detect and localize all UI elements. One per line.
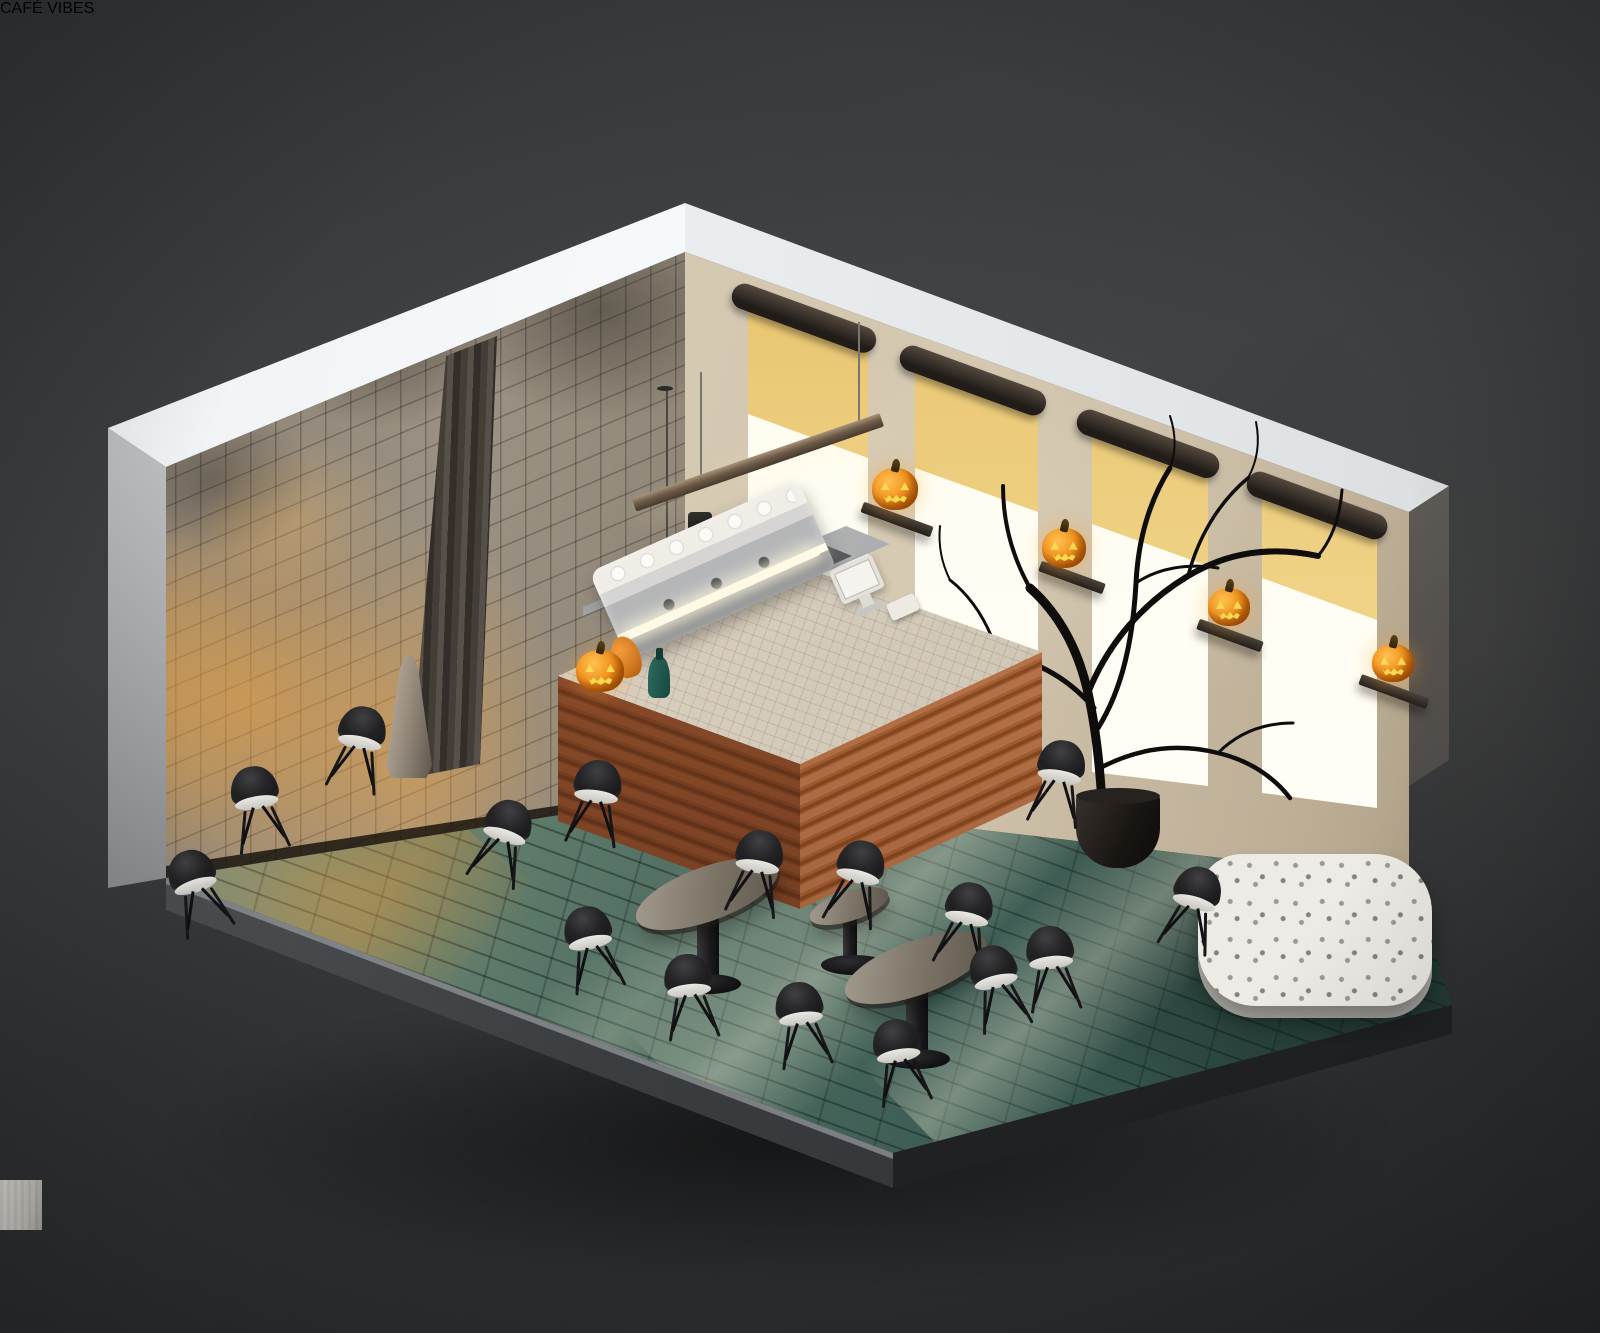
vignette <box>0 0 1600 1333</box>
halloween-cafe-render: CAFÉ VIBES <box>0 0 1600 1333</box>
